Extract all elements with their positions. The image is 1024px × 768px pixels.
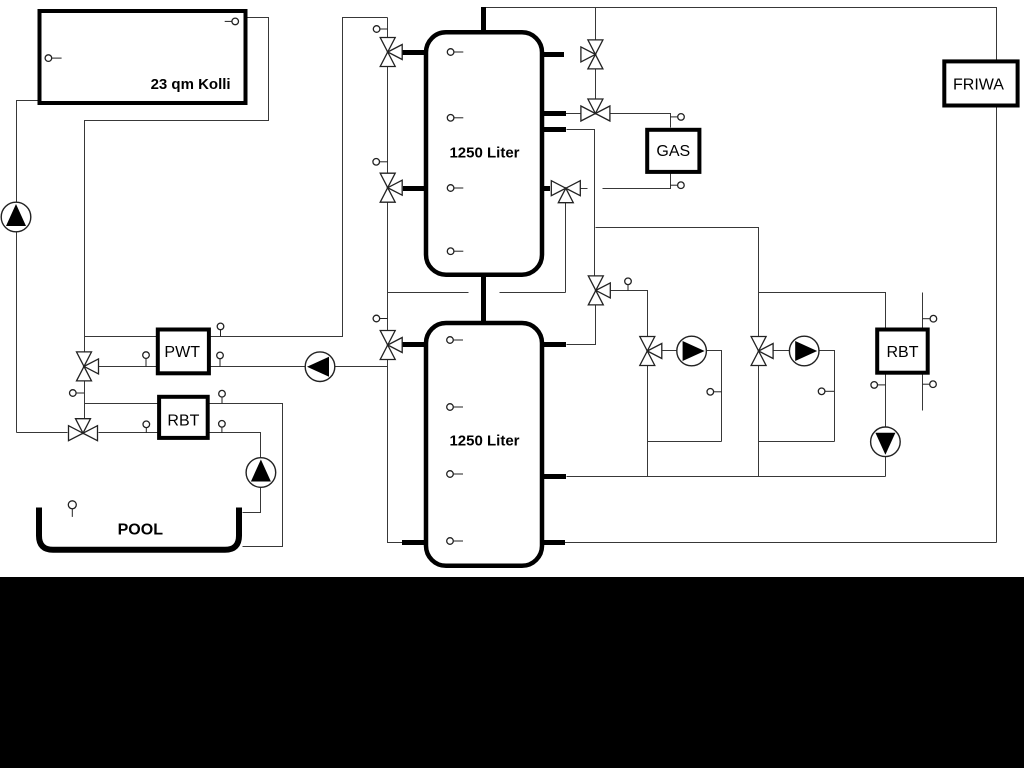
svg-text:1250 Liter: 1250 Liter <box>449 145 519 162</box>
svg-text:1250 Liter: 1250 Liter <box>449 433 519 450</box>
svg-text:RBT: RBT <box>167 413 199 430</box>
svg-text:PWT: PWT <box>164 344 200 361</box>
svg-text:RBT: RBT <box>887 344 919 361</box>
svg-text:FRIWA: FRIWA <box>953 77 1004 94</box>
svg-text:GAS: GAS <box>656 143 690 160</box>
svg-text:POOL: POOL <box>118 521 164 538</box>
svg-text:23 qm Kolli: 23 qm Kolli <box>151 76 231 93</box>
